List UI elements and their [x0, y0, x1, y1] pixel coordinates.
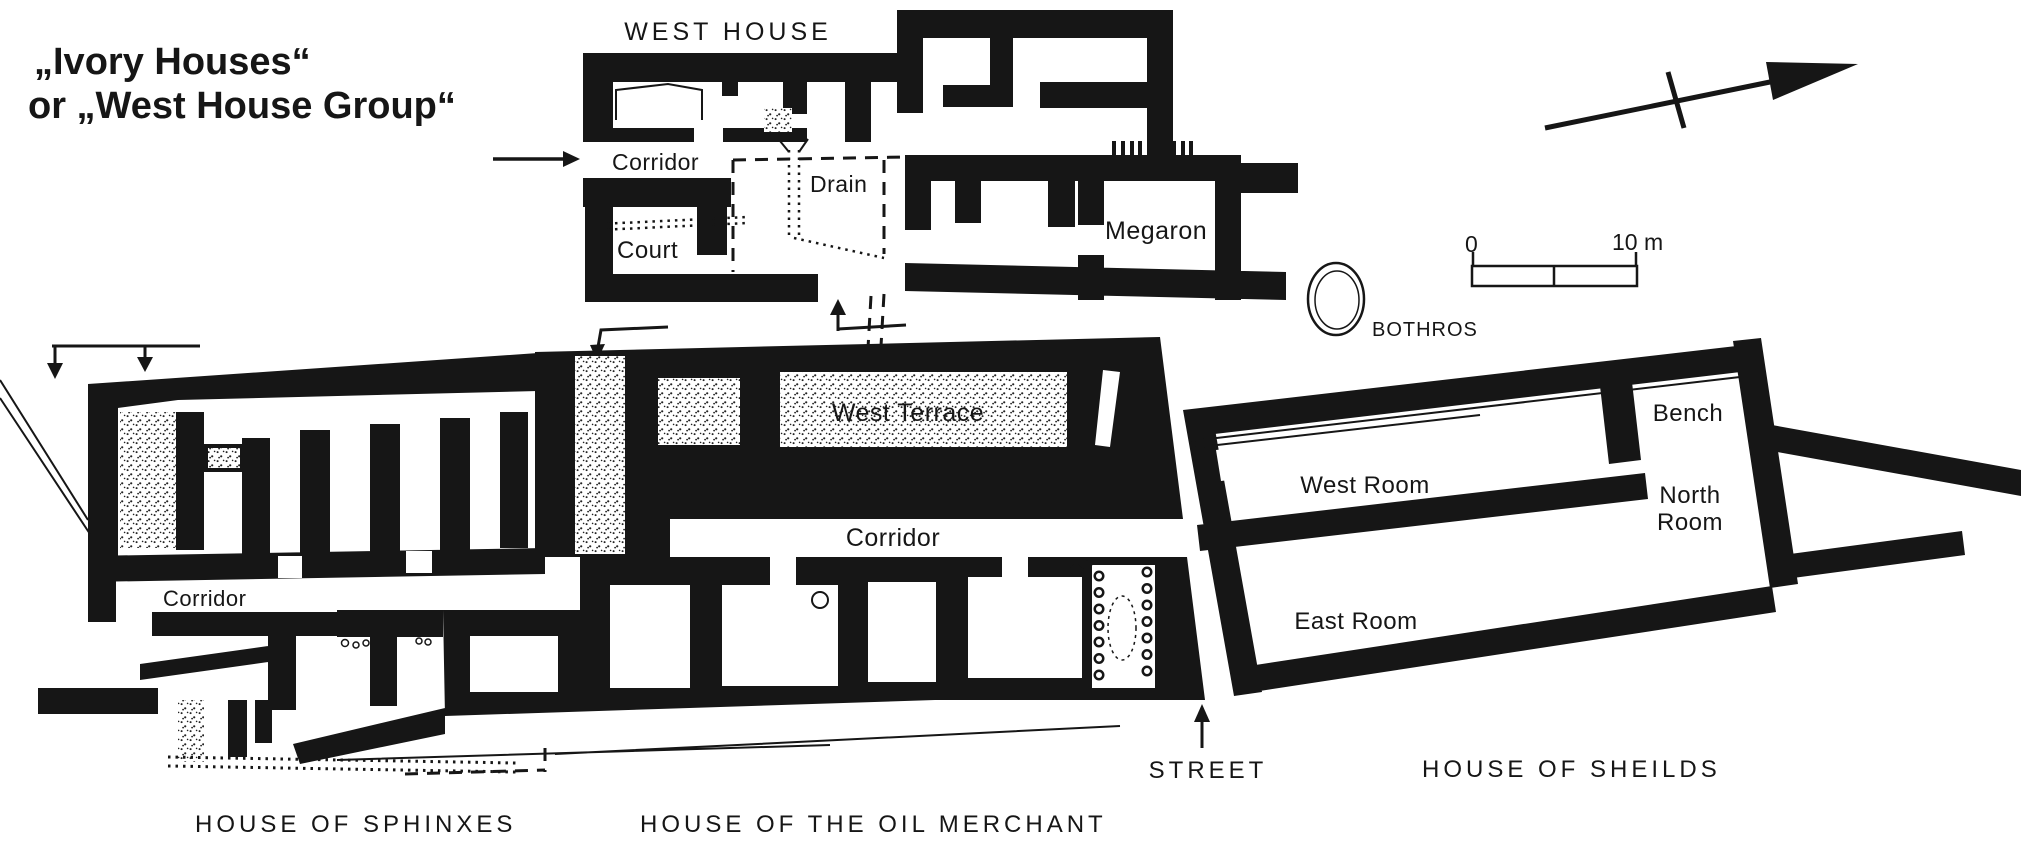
north-arrow-icon: [1545, 62, 1858, 128]
west-room-label: West Room: [1300, 472, 1429, 499]
door-gap: [1216, 446, 1253, 481]
bothros-pit-icon: [1308, 263, 1364, 335]
archaeological-plan: WEST HOUSE Corridor Drain Court Megaron …: [0, 0, 2021, 849]
west-house: WEST HOUSE Corridor Drain Court Megaron: [493, 10, 1298, 361]
door-stipple: [764, 108, 792, 132]
built-feature-outline: [616, 84, 702, 120]
wall: [1183, 338, 2021, 696]
bothros-label: BOTHROS: [1372, 319, 1478, 341]
scale-bar-icon: [1472, 252, 1637, 286]
up-flow-arrow-icon: [830, 299, 906, 331]
north-room-label-line2: Room: [1657, 509, 1723, 536]
sphinxes-corridor-label: Corridor: [163, 586, 246, 611]
site-plan-page: WEST HOUSE Corridor Drain Court Megaron …: [0, 0, 2021, 849]
corridor-entry-arrow-icon: [493, 151, 580, 167]
drain-label: Drain: [810, 171, 867, 197]
street-label: STREET: [1149, 757, 1268, 784]
boundary-dashed-lines: [405, 748, 545, 774]
down-flow-arrows-icon: [47, 346, 200, 379]
page-title-line2: or „West House Group“: [28, 85, 456, 127]
scale-bar: 0 10 m: [1465, 229, 1663, 286]
megaron-label: Megaron: [1105, 217, 1207, 245]
bothros-pit-icon-inner: [1315, 271, 1359, 329]
north-room-label-line1: North: [1659, 482, 1720, 509]
scale-ten-label: 10 m: [1612, 229, 1663, 255]
house-of-oil-merchant-label: HOUSE OF THE OIL MERCHANT: [640, 811, 1107, 838]
bench-label: Bench: [1653, 400, 1724, 427]
page-title-line1: „Ivory Houses“: [34, 41, 311, 83]
court-label: Court: [617, 237, 678, 264]
bothros: BOTHROS: [1308, 263, 1478, 341]
east-room-label: East Room: [1294, 608, 1417, 635]
excavation-dotted-lines: [168, 757, 516, 772]
west-terrace-label: West Terrace: [832, 399, 984, 427]
street: STREET: [1149, 704, 1268, 784]
scale-zero-label: 0: [1465, 231, 1478, 257]
house-of-shields-label: HOUSE OF SHEILDS: [1422, 756, 1721, 783]
house-of-shields: Bench West Room North Room East Room: [1183, 338, 2021, 696]
west-house-corridor-label: Corridor: [612, 149, 699, 175]
oil-merchant-corridor-label: Corridor: [846, 524, 940, 552]
house-of-sphinxes-label: HOUSE OF SPHINXES: [195, 811, 516, 838]
street-arrow-icon: [1194, 704, 1210, 748]
west-house-label: WEST HOUSE: [624, 18, 832, 46]
